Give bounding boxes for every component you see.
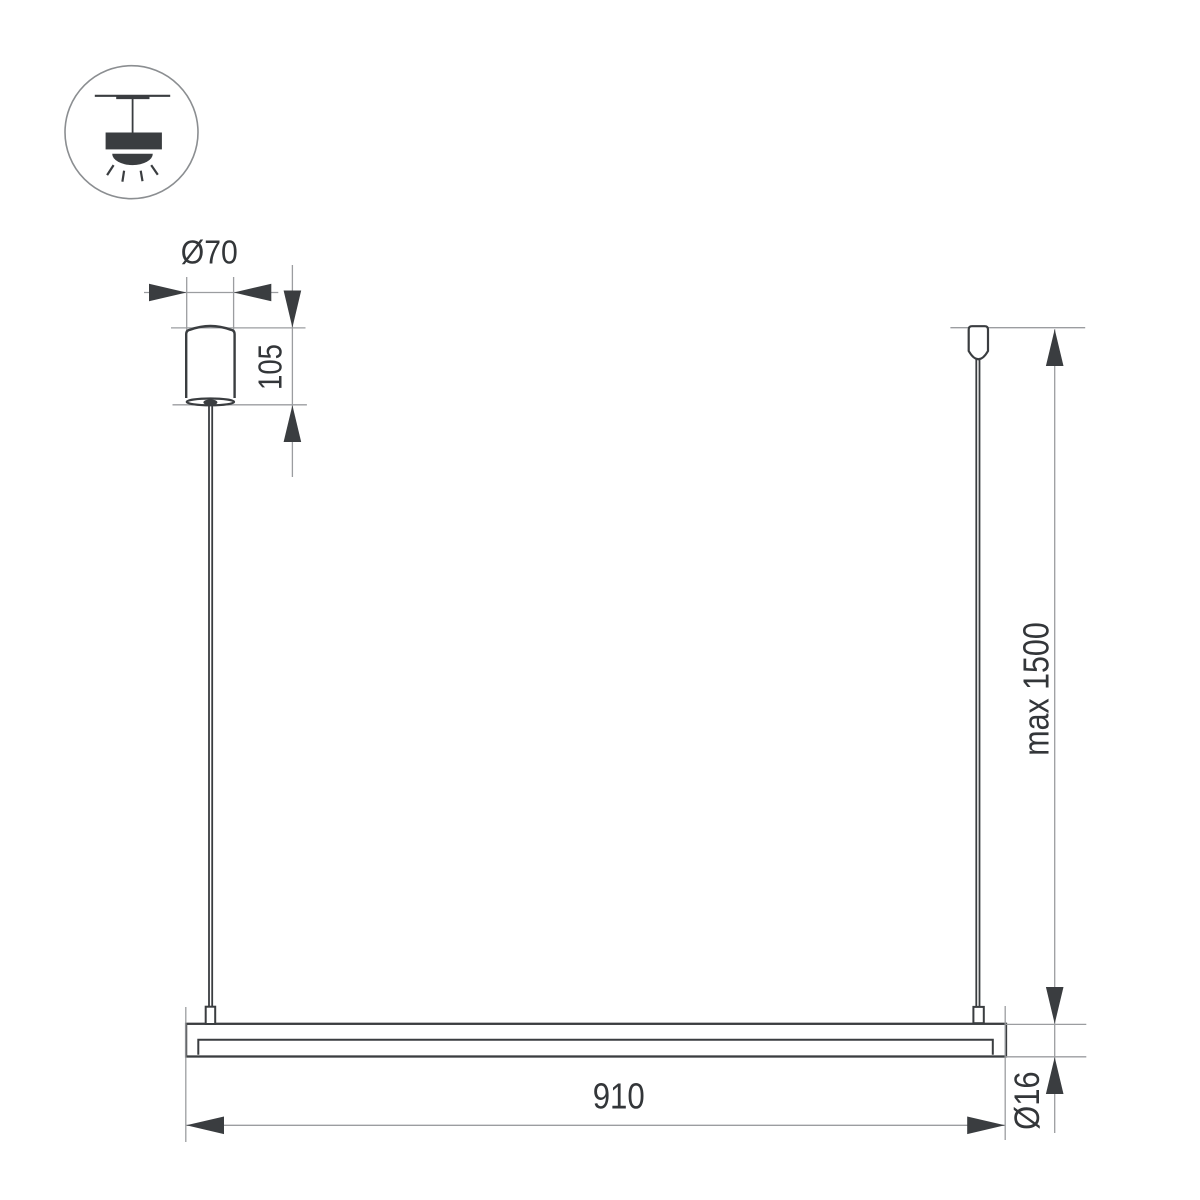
svg-text:Ø16: Ø16	[1008, 1071, 1047, 1130]
svg-text:Ø70: Ø70	[181, 234, 238, 271]
svg-text:910: 910	[593, 1075, 645, 1116]
svg-text:max 1500: max 1500	[1015, 622, 1056, 756]
svg-text:105: 105	[252, 344, 289, 390]
